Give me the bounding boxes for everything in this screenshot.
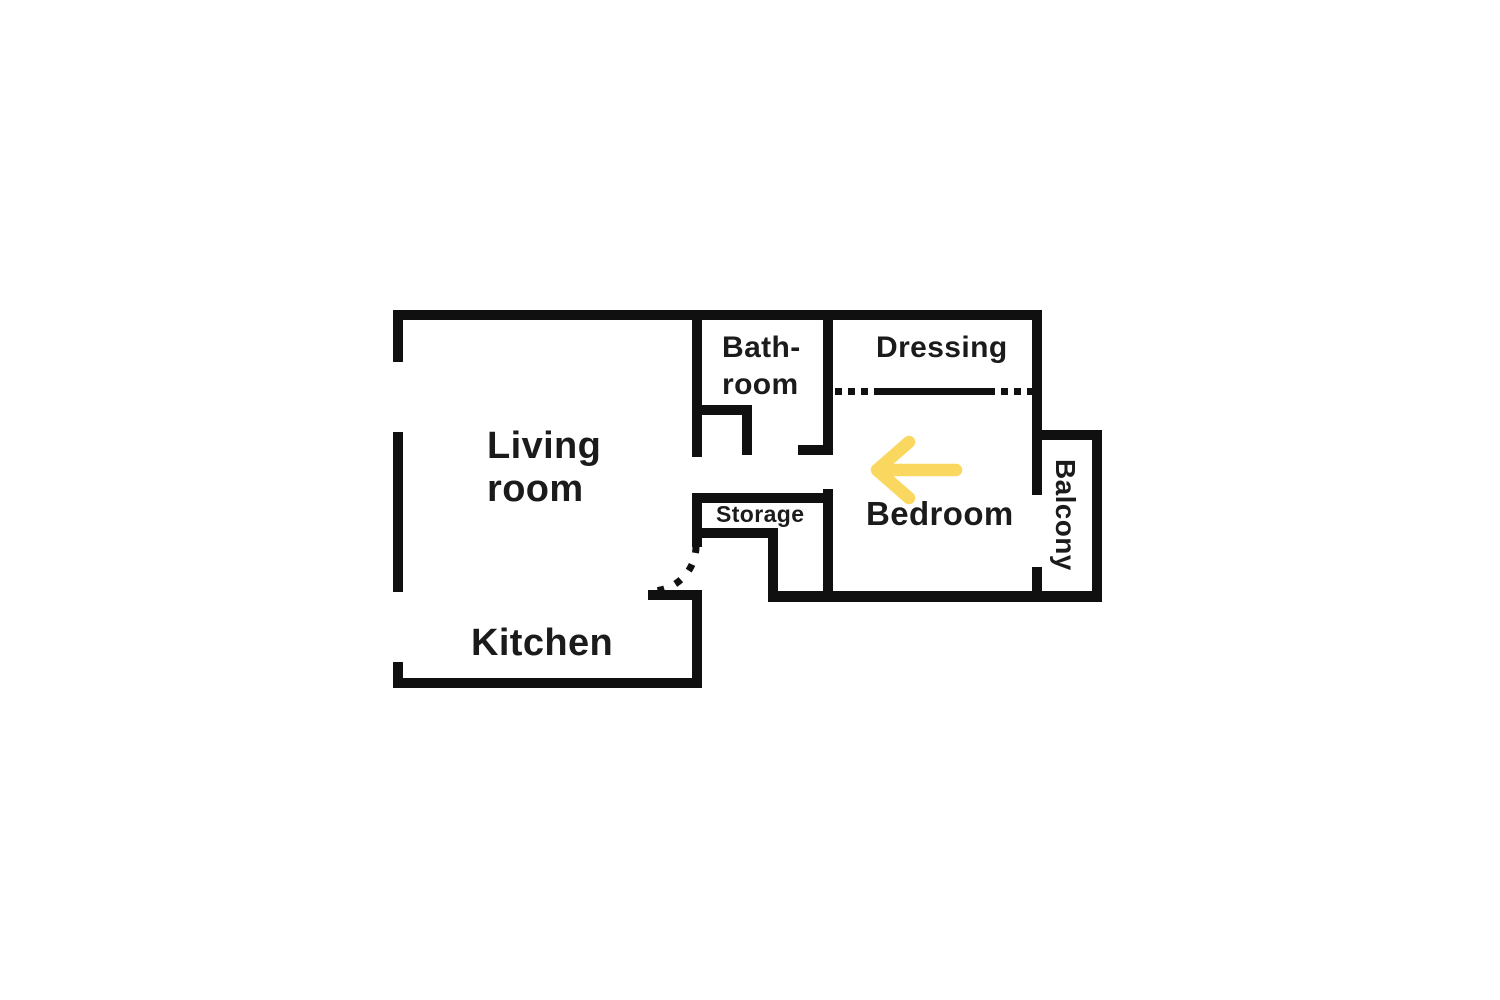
living-room-label: Living room [487, 425, 601, 511]
kitchen-label: Kitchen [471, 624, 613, 662]
bathroom-label-line1: Bath- [722, 329, 801, 366]
kitchen-door-swing-arc [651, 546, 696, 591]
storage-label: Storage [716, 503, 804, 526]
bedroom-direction-arrow-icon [877, 442, 956, 498]
balcony-label: Balcony [1050, 459, 1081, 571]
floor-plan-canvas: Living room Kitchen Bath- room Dressing … [0, 0, 1500, 1000]
bathroom-label-line2: room [722, 366, 801, 403]
bathroom-label: Bath- room [722, 329, 801, 403]
living-room-label-line2: room [487, 468, 601, 511]
living-room-label-line1: Living [487, 425, 601, 468]
bedroom-label: Bedroom [866, 497, 1014, 530]
dressing-label: Dressing [876, 333, 1008, 363]
overlay-graphics [0, 0, 1500, 1000]
